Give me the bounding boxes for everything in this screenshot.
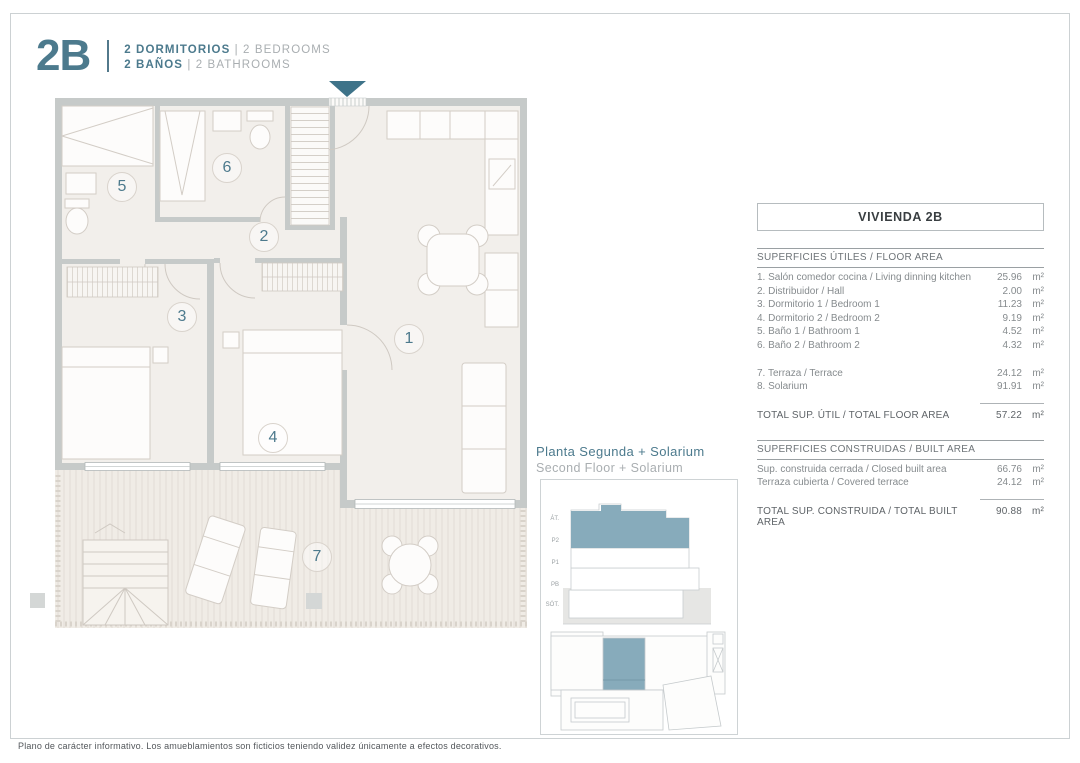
area-unit: m² xyxy=(1022,285,1044,299)
built-area-section: SUPERFICIES CONSTRUIDAS / BUILT AREA Sup… xyxy=(757,440,1044,528)
area-lbl: 8. Solarium xyxy=(757,380,978,394)
total-label: TOTAL SUP. ÚTIL / TOTAL FLOOR AREA xyxy=(757,410,978,421)
page: 2B 2 DORMITORIOS | 2 BEDROOMS 2 BAÑOS | … xyxy=(0,0,1080,763)
area-lbl: Sup. construida cerrada / Closed built a… xyxy=(757,463,978,477)
bathrooms-en: 2 BATHROOMS xyxy=(196,59,291,71)
caption-title: Planta Segunda + Solarium xyxy=(536,444,705,459)
svg-text:ÁT.: ÁT. xyxy=(550,515,559,522)
floor-area-heading: SUPERFICIES ÚTILES / FLOOR AREA xyxy=(757,248,1044,268)
area-row: 6. Baño 2 / Bathroom 24.32m² xyxy=(757,339,1044,353)
key-plan: ÁT. P2 P1 PB SÓT. xyxy=(540,479,738,735)
bathrooms-line: 2 BAÑOS | 2 BATHROOMS xyxy=(124,59,330,71)
area-val: 25.96 xyxy=(978,271,1022,285)
area-lbl: 1. Salón comedor cocina / Living dinning… xyxy=(757,271,978,285)
svg-text:P1: P1 xyxy=(552,560,560,566)
area-row: 8. Solarium91.91m² xyxy=(757,380,1044,394)
area-row: 7. Terraza / Terrace24.12m² xyxy=(757,367,1044,381)
unit-logo: 2B xyxy=(36,36,90,76)
total-rule xyxy=(980,403,1044,404)
built-area-rows: Sup. construida cerrada / Closed built a… xyxy=(757,463,1044,490)
total-label: TOTAL SUP. CONSTRUIDA / TOTAL BUILT AREA xyxy=(757,506,978,528)
panel-title: VIVIENDA 2B xyxy=(858,210,943,224)
area-val: 4.52 xyxy=(978,325,1022,339)
bedrooms-es: 2 DORMITORIOS xyxy=(124,44,230,56)
closet-shelving xyxy=(291,107,329,225)
separator: | xyxy=(235,44,239,56)
bathrooms-es: 2 BAÑOS xyxy=(124,59,183,71)
entrance-arrow-icon xyxy=(329,81,366,97)
area-lbl: 5. Baño 1 / Bathroom 1 xyxy=(757,325,978,339)
area-row: 4. Dormitorio 2 / Bedroom 29.19m² xyxy=(757,312,1044,326)
area-lbl: 3. Dormitorio 1 / Bedroom 1 xyxy=(757,298,978,312)
area-row: 1. Salón comedor cocina / Living dinning… xyxy=(757,271,1044,285)
room-marker-bath2: 6 xyxy=(212,153,242,183)
highlighted-floor-p2 xyxy=(571,528,689,548)
building-section xyxy=(563,504,711,624)
header: 2B 2 DORMITORIOS | 2 BEDROOMS 2 BAÑOS | … xyxy=(36,36,331,76)
area-unit: m² xyxy=(1022,298,1044,312)
area-lbl: 7. Terraza / Terrace xyxy=(757,367,978,381)
built-area-heading: SUPERFICIES CONSTRUIDAS / BUILT AREA xyxy=(757,440,1044,460)
room-marker-bedroom2: 4 xyxy=(258,423,288,453)
floor-area-section: SUPERFICIES ÚTILES / FLOOR AREA 1. Salón… xyxy=(757,248,1044,421)
terrace-table xyxy=(382,536,438,594)
separator: | xyxy=(187,59,191,71)
floor-area-rows: 1. Salón comedor cocina / Living dinning… xyxy=(757,271,1044,394)
panel-title-box: VIVIENDA 2B xyxy=(757,203,1044,231)
bedrooms-line: 2 DORMITORIOS | 2 BEDROOMS xyxy=(124,44,330,56)
area-val: 4.32 xyxy=(978,339,1022,353)
room-marker-terrace: 7 xyxy=(302,542,332,572)
area-row: 5. Baño 1 / Bathroom 14.52m² xyxy=(757,325,1044,339)
terrace-pillar xyxy=(30,593,45,608)
area-lbl: 6. Baño 2 / Bathroom 2 xyxy=(757,339,978,353)
area-panel: VIVIENDA 2B SUPERFICIES ÚTILES / FLOOR A… xyxy=(757,203,1044,528)
area-row: 2. Distribuidor / Hall2.00m² xyxy=(757,285,1044,299)
area-unit: m² xyxy=(1022,367,1044,381)
floor-plan-drawing xyxy=(25,75,530,635)
built-area-total: TOTAL SUP. CONSTRUIDA / TOTAL BUILT AREA… xyxy=(757,506,1044,528)
room-marker-bath1: 5 xyxy=(107,172,137,202)
area-val: 24.12 xyxy=(978,367,1022,381)
area-lbl: Terraza cubierta / Covered terrace xyxy=(757,476,978,490)
total-rule xyxy=(980,499,1044,500)
sofa xyxy=(462,363,506,493)
area-unit: m² xyxy=(1022,463,1044,477)
header-subtitle: 2 DORMITORIOS | 2 BEDROOMS 2 BAÑOS | 2 B… xyxy=(124,42,330,71)
total-unit: m² xyxy=(1022,410,1044,421)
area-unit: m² xyxy=(1022,325,1044,339)
total-value: 57.22 xyxy=(978,410,1022,421)
area-unit: m² xyxy=(1022,271,1044,285)
svg-text:PB: PB xyxy=(551,582,559,588)
terrace-pillar xyxy=(306,593,322,609)
bedrooms-en: 2 BEDROOMS xyxy=(243,44,331,56)
area-val: 9.19 xyxy=(978,312,1022,326)
area-unit: m² xyxy=(1022,339,1044,353)
dining-table xyxy=(418,225,488,295)
svg-text:SÓT.: SÓT. xyxy=(546,601,560,608)
floor-plan: 1 2 3 4 5 6 7 xyxy=(25,75,530,635)
area-lbl: 2. Distribuidor / Hall xyxy=(757,285,978,299)
svg-text:P2: P2 xyxy=(552,538,560,544)
area-unit: m² xyxy=(1022,380,1044,394)
total-value: 90.88 xyxy=(978,506,1022,528)
section-floor-labels: ÁT. P2 P1 PB SÓT. xyxy=(546,515,560,608)
area-row: 3. Dormitorio 1 / Bedroom 111.23m² xyxy=(757,298,1044,312)
area-val: 24.12 xyxy=(978,476,1022,490)
floor-area-total: TOTAL SUP. ÚTIL / TOTAL FLOOR AREA 57.22… xyxy=(757,410,1044,421)
area-val: 2.00 xyxy=(978,285,1022,299)
area-row: Sup. construida cerrada / Closed built a… xyxy=(757,463,1044,477)
highlighted-unit xyxy=(603,638,645,690)
total-unit: m² xyxy=(1022,506,1044,528)
logo-divider xyxy=(107,40,109,72)
plan-caption: Planta Segunda + Solarium Second Floor +… xyxy=(536,444,705,475)
area-lbl: 4. Dormitorio 2 / Bedroom 2 xyxy=(757,312,978,326)
entrance-threshold xyxy=(329,98,366,106)
area-unit: m² xyxy=(1022,476,1044,490)
room-marker-hall: 2 xyxy=(249,222,279,252)
area-row: Terraza cubierta / Covered terrace24.12m… xyxy=(757,476,1044,490)
area-val: 66.76 xyxy=(978,463,1022,477)
caption-subtitle: Second Floor + Solarium xyxy=(536,461,705,475)
room-marker-bedroom1: 3 xyxy=(167,302,197,332)
key-plan-drawing: ÁT. P2 P1 PB SÓT. xyxy=(541,480,737,734)
highlighted-floor-at xyxy=(571,511,666,528)
room-marker-living: 1 xyxy=(394,324,424,354)
area-val: 91.91 xyxy=(978,380,1022,394)
disclaimer: Plano de carácter informativo. Los amueb… xyxy=(18,741,502,751)
site-plan xyxy=(551,632,725,730)
area-val: 11.23 xyxy=(978,298,1022,312)
area-unit: m² xyxy=(1022,312,1044,326)
